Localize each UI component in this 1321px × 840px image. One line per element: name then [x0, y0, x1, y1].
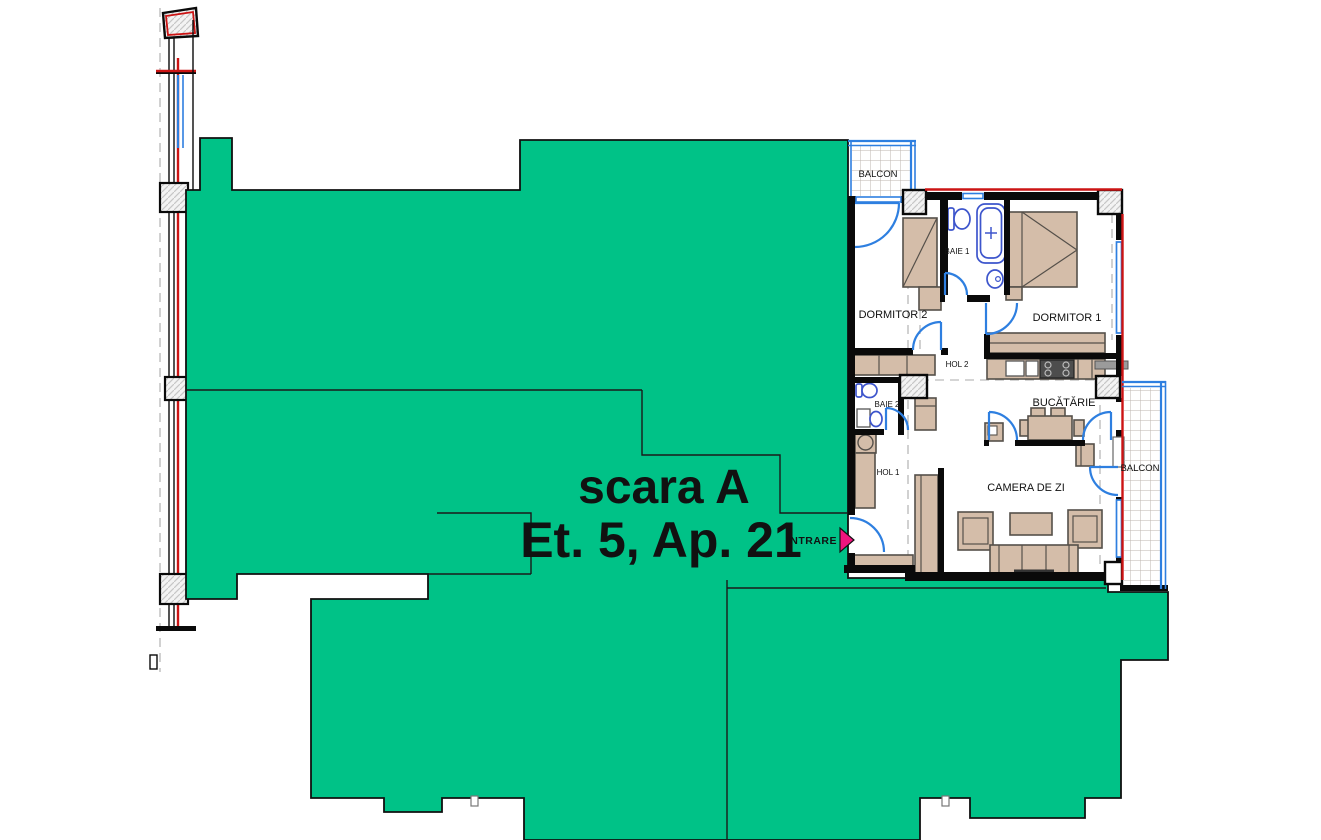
balcony-right-tiles	[1124, 388, 1161, 585]
room-label-balcon-top: BALCON	[858, 169, 897, 180]
door-swing-icon	[945, 273, 967, 295]
staircase-title: scara A	[578, 461, 750, 514]
door-swing-icon	[913, 322, 941, 350]
pillar	[900, 375, 927, 398]
toilet-icon	[954, 209, 970, 229]
balcony-door-window-icon	[856, 197, 901, 202]
room-label-hol2: HOL 2	[946, 360, 969, 369]
coffee-table	[1010, 513, 1052, 535]
toilet-icon	[862, 384, 877, 398]
bed	[1006, 212, 1077, 287]
pillar	[903, 190, 926, 214]
exterior-wall-line	[169, 38, 174, 628]
wall-tick	[150, 655, 157, 669]
pillar	[1096, 376, 1120, 398]
room-label-dormitor1: DORMITOR 1	[1033, 312, 1102, 324]
door-swing-icon	[855, 203, 899, 247]
pillar	[160, 183, 188, 212]
kitchen-sink-icon	[1026, 361, 1038, 376]
pillar	[1098, 190, 1122, 214]
chair	[1074, 420, 1084, 436]
room-label-baie1: BAIE 1	[945, 247, 970, 256]
dresser	[919, 287, 941, 310]
pillar	[1105, 562, 1122, 584]
balcony-right: BALCON	[1120, 381, 1166, 589]
door-swing-icon	[1090, 467, 1118, 495]
door-swing-icon	[1083, 412, 1111, 440]
hallway-cabinet	[851, 355, 935, 375]
pillar	[165, 377, 188, 400]
stove-icon	[1040, 360, 1074, 378]
room-label-camera-de-zi: CAMERA DE ZI	[987, 482, 1065, 494]
facade-tick	[942, 796, 949, 806]
room-label-baie2: BAIE 2	[875, 400, 900, 409]
shower-tray	[857, 409, 870, 427]
room-label-dormitor2: DORMITOR 2	[859, 309, 928, 321]
facade-tick	[471, 796, 478, 806]
door-swing-icon	[986, 303, 1017, 334]
entrance-label: INTRARE	[787, 535, 837, 547]
floor-plan-canvas: scara A Et. 5, Ap. 21 BALCON	[0, 0, 1321, 840]
hall-tall-cabinet	[855, 453, 875, 508]
furniture	[851, 212, 1128, 577]
room-label-balcon-right: BALCON	[1120, 463, 1159, 474]
pillar	[160, 574, 188, 604]
toilet-icon	[948, 208, 954, 230]
floor-plan-drawing: scara A Et. 5, Ap. 21 BALCON	[0, 0, 1321, 840]
tv-stand	[1076, 444, 1094, 466]
window-icon	[1117, 500, 1122, 557]
entry-wardrobe	[915, 475, 938, 577]
entry-door-swing-icon	[850, 518, 884, 552]
walls	[844, 190, 1168, 592]
wall-stub-bottom	[156, 626, 196, 631]
toilet-icon	[856, 384, 862, 397]
dining-table	[1028, 416, 1072, 440]
room-label-bucatarie: BUCĂTĂRIE	[1033, 396, 1096, 409]
room-label-hol1: HOL 1	[877, 468, 900, 477]
door-swing-icon	[886, 408, 908, 430]
hall-chair	[915, 398, 936, 430]
sink-icon	[870, 412, 882, 427]
window-icon	[1117, 242, 1122, 333]
balcony-top: BALCON	[848, 140, 916, 196]
kitchen-sink-icon	[1006, 361, 1024, 376]
floor-apartment-title: Et. 5, Ap. 21	[520, 512, 802, 568]
